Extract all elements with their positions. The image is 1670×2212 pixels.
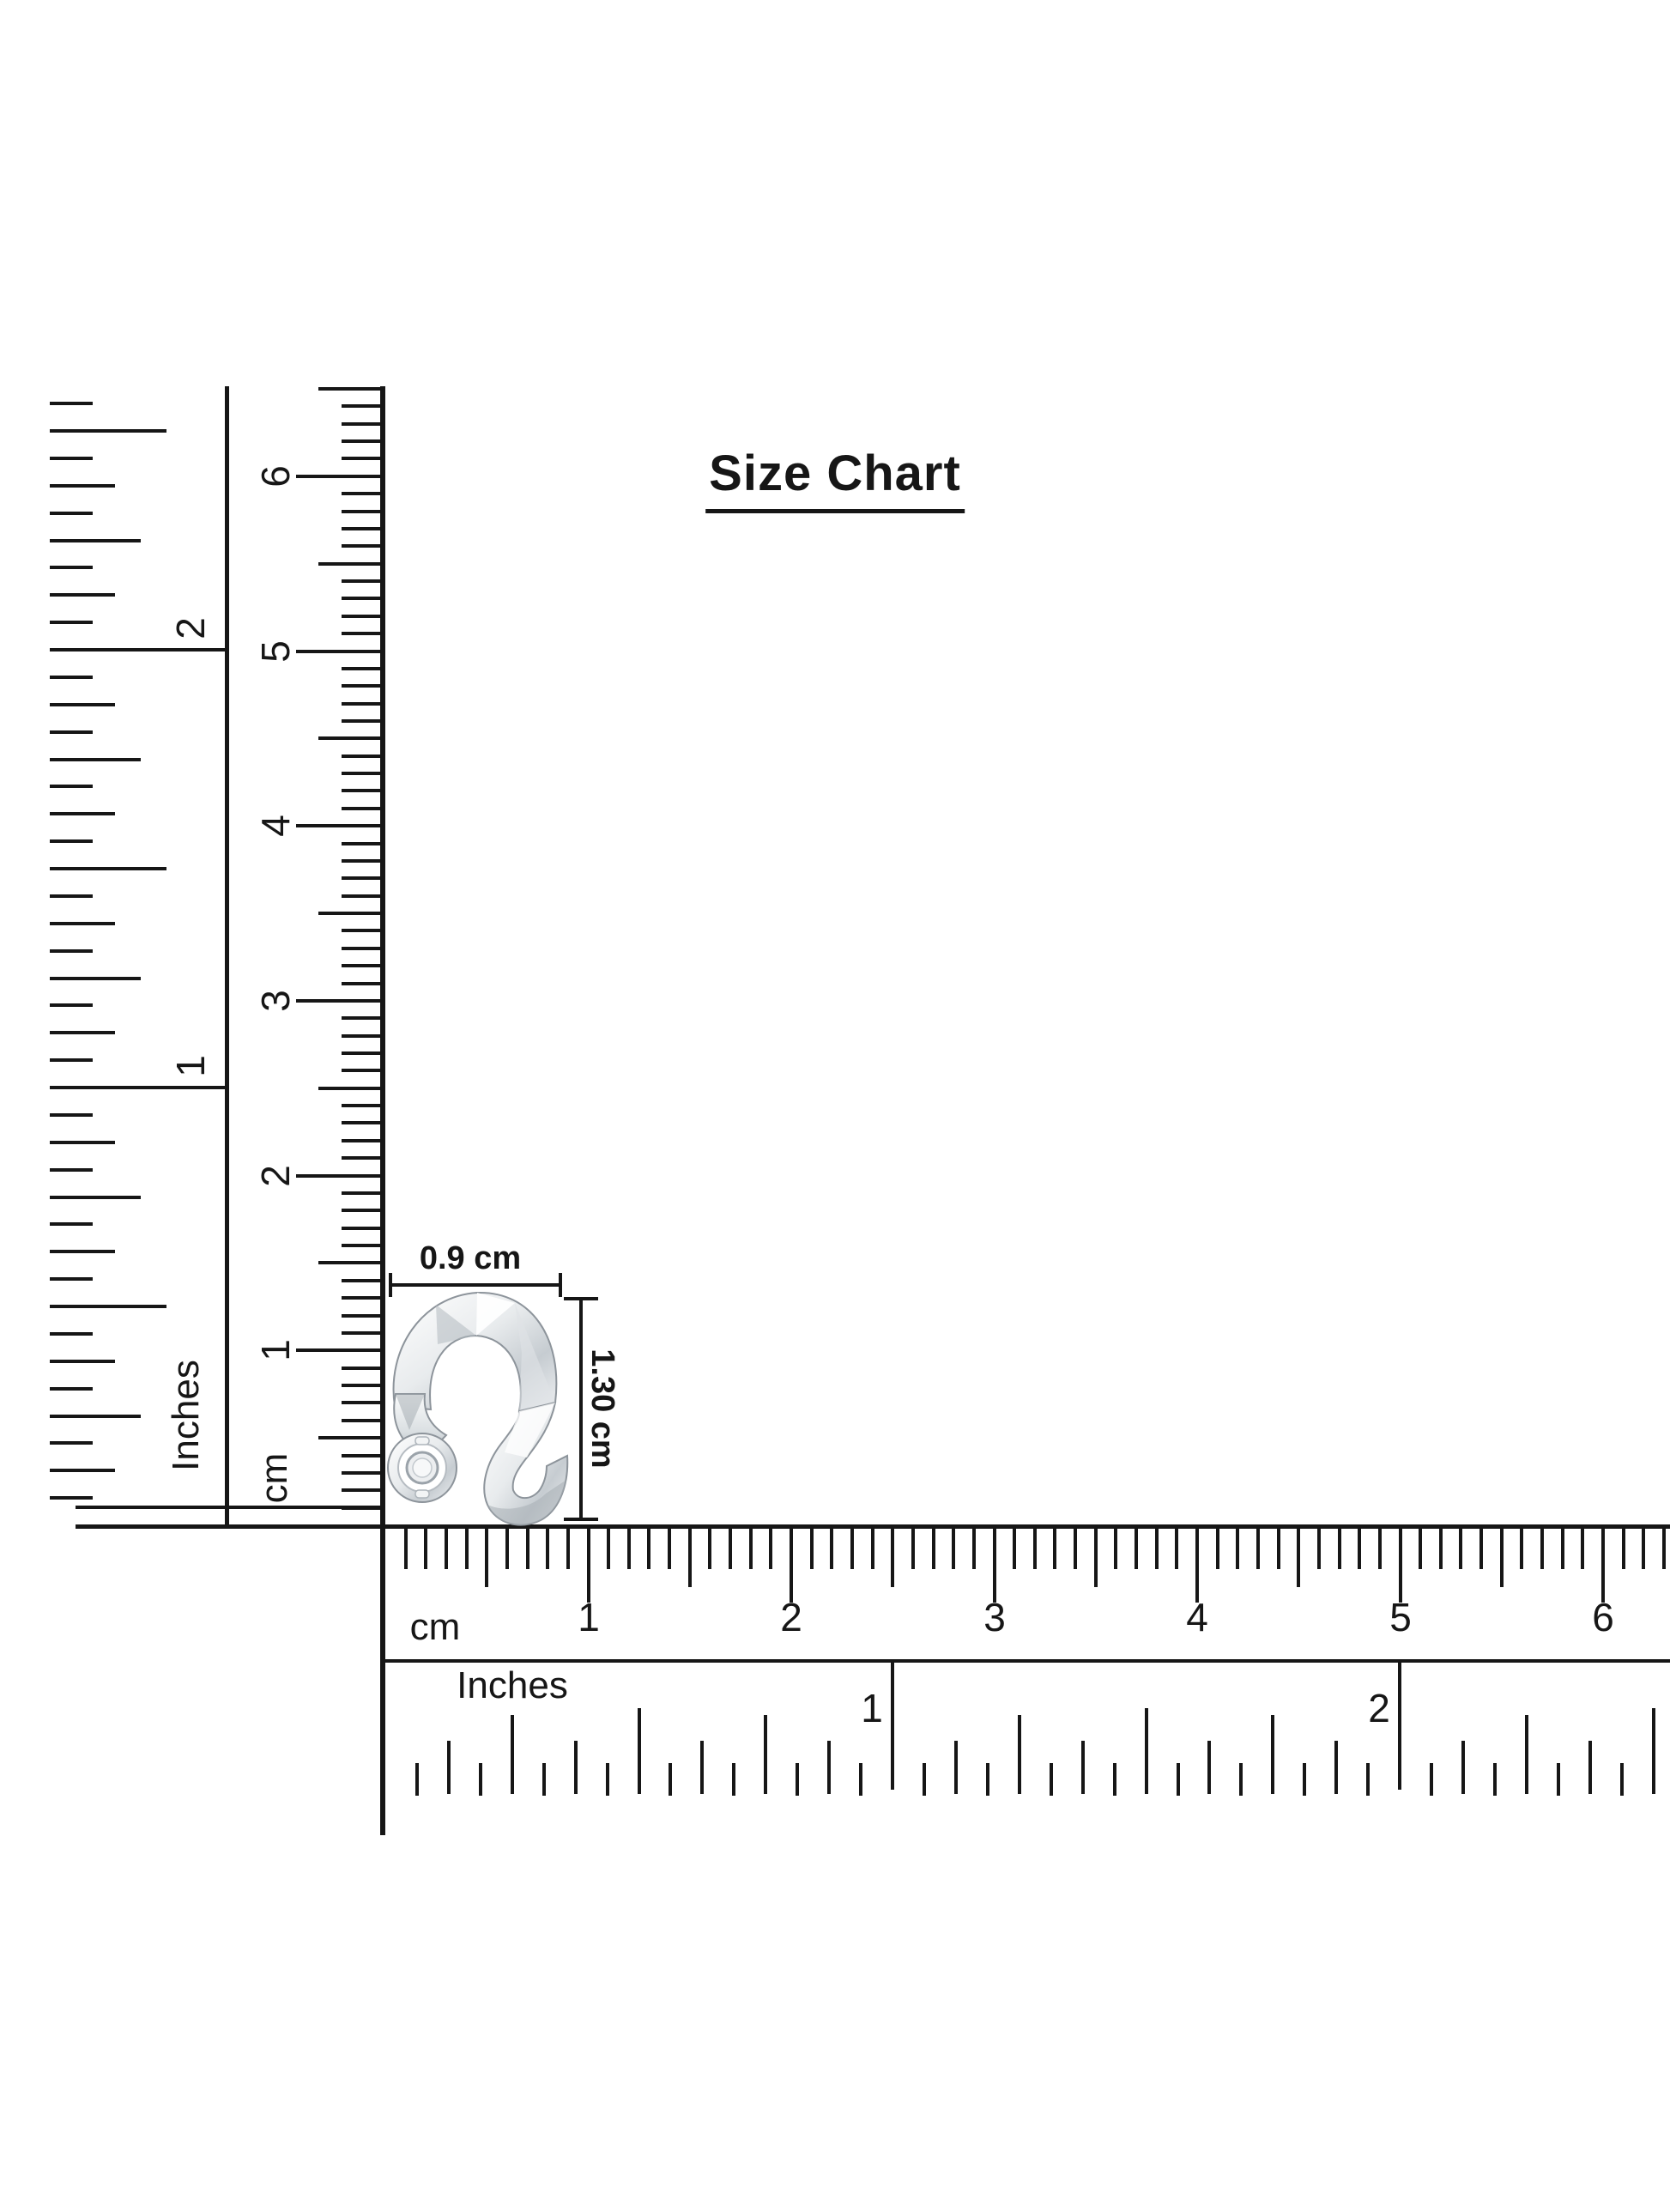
cm-tick	[1642, 1529, 1645, 1569]
vertical-inches-unit-label: Inches	[167, 1360, 205, 1471]
cm-tick	[445, 1529, 448, 1569]
height-dimension-line	[579, 1297, 583, 1521]
inch-tick	[50, 977, 141, 980]
inch-tick	[1334, 1741, 1338, 1794]
inch-tick	[1493, 1763, 1497, 1796]
cm-tick	[1601, 1529, 1605, 1603]
inch-tick	[50, 949, 93, 953]
inch-tick	[1525, 1715, 1528, 1794]
cm-tick	[1622, 1529, 1625, 1569]
inch-tick	[1050, 1763, 1053, 1796]
cm-tick	[342, 597, 384, 600]
cm-ruler-number: 1	[578, 1597, 600, 1637]
cm-tick	[708, 1529, 711, 1569]
cm-tick	[342, 947, 384, 950]
inch-tick	[827, 1741, 831, 1794]
cm-ruler-number: 5	[256, 640, 295, 663]
cm-tick	[1561, 1529, 1564, 1569]
cm-tick	[342, 615, 384, 618]
cm-tick	[342, 1244, 384, 1247]
cm-tick	[1540, 1529, 1544, 1569]
inch-tick	[50, 1031, 115, 1034]
cm-tick	[342, 527, 384, 530]
cm-tick	[1175, 1529, 1178, 1569]
cm-tick	[1419, 1529, 1422, 1569]
inch-tick	[50, 566, 93, 569]
cm-tick	[318, 1087, 384, 1090]
cm-tick	[342, 1401, 384, 1404]
cm-tick	[296, 1174, 384, 1178]
inch-ruler-number: 2	[1368, 1688, 1390, 1728]
inch-tick	[50, 1332, 93, 1336]
cm-tick	[318, 1436, 384, 1439]
cm-tick	[1338, 1529, 1341, 1569]
cm-tick	[668, 1529, 671, 1569]
page-title: Size Chart	[705, 445, 965, 513]
cm-tick	[1439, 1529, 1443, 1569]
inch-tick	[542, 1763, 546, 1796]
cm-tick	[1399, 1529, 1402, 1603]
inch-tick	[50, 1277, 93, 1281]
cm-tick	[342, 1034, 384, 1038]
inch-tick	[1366, 1763, 1370, 1796]
inch-tick	[50, 1141, 115, 1144]
cm-tick	[342, 422, 384, 426]
cm-tick	[972, 1529, 976, 1569]
cm-tick	[647, 1529, 650, 1569]
cm-ruler-number: 3	[983, 1597, 1006, 1637]
inch-tick	[50, 703, 115, 706]
cm-tick	[1033, 1529, 1037, 1569]
bezel-stone-center	[413, 1458, 432, 1477]
inch-tick	[1239, 1763, 1243, 1796]
inch-tick	[50, 1496, 93, 1500]
cm-ruler-number: 6	[1592, 1597, 1614, 1637]
cm-tick	[342, 1016, 384, 1020]
cm-tick	[342, 807, 384, 810]
inch-ruler-number: 1	[171, 1055, 210, 1077]
cm-tick	[790, 1529, 793, 1603]
inch-tick	[638, 1708, 641, 1794]
cm-tick	[342, 1209, 384, 1212]
inch-tick	[1652, 1708, 1655, 1794]
cm-tick	[342, 755, 384, 758]
inch-tick	[50, 1469, 115, 1472]
inch-tick	[50, 1250, 115, 1253]
cm-tick	[932, 1529, 935, 1569]
cm-ruler-number: 3	[256, 990, 295, 1012]
cm-tick	[1114, 1529, 1117, 1569]
cm-tick	[342, 876, 384, 880]
cm-ruler-number: 1	[256, 1339, 295, 1361]
cm-tick	[342, 1454, 384, 1457]
width-dimension-label: 0.9 cm	[420, 1242, 521, 1275]
inch-tick	[479, 1763, 482, 1796]
inch-tick	[50, 758, 141, 761]
cm-ruler-number: 6	[256, 465, 295, 488]
inch-tick	[50, 894, 93, 898]
cm-tick	[342, 1121, 384, 1124]
inch-tick	[447, 1741, 451, 1794]
cm-tick	[342, 1314, 384, 1318]
cm-tick	[342, 684, 384, 688]
cm-tick	[342, 1069, 384, 1072]
cm-tick	[318, 1261, 384, 1264]
inch-tick	[50, 1305, 166, 1308]
inch-tick	[700, 1741, 704, 1794]
inch-tick	[1081, 1741, 1085, 1794]
cm-ruler-number: 4	[1186, 1597, 1208, 1637]
horizontal-inches-unit-label: Inches	[457, 1667, 568, 1705]
inch-tick	[764, 1715, 767, 1794]
cm-tick	[342, 894, 384, 898]
inch-tick	[50, 1360, 115, 1363]
cm-tick	[318, 562, 384, 566]
inch-tick	[50, 812, 115, 815]
inch-tick	[50, 457, 93, 460]
cm-ruler-number: 4	[256, 815, 295, 837]
inch-tick	[50, 1387, 93, 1391]
cm-tick	[342, 404, 384, 408]
vertical-ruler-divider	[225, 386, 229, 1528]
cm-tick	[342, 439, 384, 443]
cm-tick	[1277, 1529, 1280, 1569]
inch-tick	[796, 1763, 799, 1796]
cm-tick	[342, 1506, 384, 1510]
cm-tick	[526, 1529, 529, 1569]
cm-tick	[587, 1529, 590, 1603]
inch-tick	[923, 1763, 926, 1796]
inch-tick	[50, 867, 166, 870]
cm-tick	[342, 929, 384, 932]
bezel-notch-top	[415, 1437, 429, 1445]
cm-tick	[566, 1529, 570, 1569]
cm-tick	[342, 1139, 384, 1142]
cm-tick	[342, 632, 384, 635]
cm-tick	[342, 1104, 384, 1107]
cm-ruler-number: 5	[1389, 1597, 1412, 1637]
inch-tick	[50, 484, 115, 488]
cm-tick	[296, 475, 384, 478]
inch-tick	[50, 1415, 141, 1418]
cm-tick	[607, 1529, 610, 1569]
inch-tick	[50, 1196, 141, 1199]
cm-tick	[342, 1471, 384, 1475]
cm-tick	[342, 1191, 384, 1195]
height-dimension-label: 1.30 cm	[586, 1348, 619, 1468]
inch-tick	[50, 429, 166, 433]
inch-tick	[1018, 1715, 1021, 1794]
cm-tick	[342, 1156, 384, 1160]
cm-tick	[342, 1384, 384, 1387]
inch-tick	[50, 402, 93, 405]
cm-tick	[342, 982, 384, 985]
inch-tick	[50, 1003, 93, 1007]
cm-tick	[296, 650, 384, 653]
cm-tick	[342, 544, 384, 548]
cm-tick	[485, 1529, 488, 1587]
cm-tick	[1500, 1529, 1504, 1587]
cm-tick	[850, 1529, 854, 1569]
cm-tick	[1013, 1529, 1016, 1569]
cm-tick	[342, 719, 384, 723]
cm-ruler-edge	[380, 386, 385, 1835]
cm-tick	[911, 1529, 915, 1569]
cm-tick	[342, 667, 384, 670]
horizontal-cm-unit-label: cm	[410, 1609, 461, 1646]
inch-tick	[606, 1763, 609, 1796]
inch-tick	[1557, 1763, 1560, 1796]
cm-tick	[404, 1529, 408, 1569]
cm-tick	[1053, 1529, 1056, 1569]
cm-tick	[1378, 1529, 1382, 1569]
cm-tick	[342, 579, 384, 583]
inch-tick	[50, 785, 93, 788]
cm-tick	[1195, 1529, 1199, 1603]
inch-tick	[511, 1715, 514, 1794]
cm-tick	[342, 842, 384, 845]
inch-tick	[954, 1741, 958, 1794]
inch-ruler-number: 2	[171, 617, 210, 639]
cm-tick	[1662, 1529, 1666, 1569]
inches-ruler-top-edge	[384, 1659, 1670, 1663]
inch-tick	[50, 839, 93, 843]
inch-tick	[669, 1763, 672, 1796]
cm-tick	[810, 1529, 814, 1569]
inch-tick	[986, 1763, 989, 1796]
cm-tick	[342, 772, 384, 775]
inch-tick	[50, 1441, 93, 1445]
inch-tick	[1207, 1741, 1211, 1794]
bezel-notch-bottom	[415, 1490, 429, 1498]
inch-tick	[891, 1663, 894, 1790]
cm-tick	[296, 999, 384, 1003]
cm-tick	[546, 1529, 549, 1569]
inch-tick	[50, 593, 115, 597]
cm-tick	[871, 1529, 874, 1569]
inch-tick	[859, 1763, 862, 1796]
cm-ruler-number: 2	[780, 1597, 802, 1637]
inch-tick	[1271, 1715, 1274, 1794]
cm-tick	[342, 1367, 384, 1370]
cm-tick	[769, 1529, 772, 1569]
cm-tick	[1074, 1529, 1077, 1569]
inch-tick	[50, 512, 93, 515]
cm-tick	[424, 1529, 427, 1569]
cm-tick	[318, 736, 384, 740]
inch-tick	[1145, 1708, 1148, 1794]
cm-tick	[1135, 1529, 1138, 1569]
cm-tick	[891, 1529, 894, 1587]
vertical-cm-unit-label: cm	[256, 1453, 293, 1504]
cm-tick	[296, 1348, 384, 1352]
inch-tick	[50, 648, 225, 651]
inch-tick	[50, 1168, 93, 1172]
inch-tick	[50, 539, 141, 542]
cm-tick	[1094, 1529, 1098, 1587]
cm-tick	[729, 1529, 732, 1569]
cm-tick	[749, 1529, 753, 1569]
inch-tick	[732, 1763, 735, 1796]
cm-tick	[1256, 1529, 1260, 1569]
cm-tick	[1520, 1529, 1523, 1569]
inch-tick	[50, 1222, 93, 1226]
cm-tick	[342, 510, 384, 513]
inch-tick	[1461, 1741, 1465, 1794]
inch-tick	[50, 621, 93, 624]
cm-tick	[1236, 1529, 1239, 1569]
cm-tick	[342, 1488, 384, 1492]
cm-tick	[342, 859, 384, 863]
cm-tick	[342, 1331, 384, 1335]
inch-tick	[50, 922, 115, 925]
inch-tick	[1430, 1763, 1433, 1796]
cm-tick	[342, 1227, 384, 1230]
inch-tick	[1303, 1763, 1306, 1796]
inch-tick	[1620, 1763, 1624, 1796]
cm-tick	[465, 1529, 469, 1569]
cm-tick	[1459, 1529, 1462, 1569]
cm-tick	[1317, 1529, 1321, 1569]
cm-tick	[318, 912, 384, 915]
cm-tick	[1155, 1529, 1159, 1569]
inch-tick	[50, 1058, 93, 1062]
cm-tick	[342, 964, 384, 967]
inch-tick	[1177, 1763, 1180, 1796]
cm-tick	[1358, 1529, 1361, 1569]
cm-tick	[1581, 1529, 1584, 1569]
cm-tick	[342, 1279, 384, 1282]
inch-tick	[1113, 1763, 1116, 1796]
cm-tick	[627, 1529, 631, 1569]
cm-ruler-number: 2	[256, 1165, 295, 1187]
cm-tick	[342, 457, 384, 460]
cm-tick	[830, 1529, 833, 1569]
cm-tick	[952, 1529, 955, 1569]
inch-tick	[50, 676, 93, 679]
size-chart-canvas: Size Chart 12 123456 123456 12 Inches cm…	[0, 0, 1670, 2212]
cm-tick	[342, 1296, 384, 1300]
cm-tick	[342, 1419, 384, 1422]
cm-tick	[1216, 1529, 1219, 1569]
cm-tick	[688, 1529, 692, 1587]
ear-cuff-product-image	[384, 1284, 572, 1526]
cm-tick	[505, 1529, 509, 1569]
inch-tick	[50, 1086, 225, 1089]
cm-tick	[342, 789, 384, 792]
cm-tick	[993, 1529, 996, 1603]
cm-tick	[296, 824, 384, 827]
cm-tick	[1297, 1529, 1300, 1587]
inch-tick	[1398, 1663, 1401, 1790]
cm-tick	[318, 387, 384, 391]
inch-ruler-number: 1	[861, 1688, 883, 1728]
cm-tick	[1479, 1529, 1483, 1569]
cm-tick	[342, 702, 384, 706]
inch-tick	[1588, 1741, 1592, 1794]
inch-tick	[50, 730, 93, 734]
cm-tick	[342, 1051, 384, 1055]
inch-tick	[574, 1741, 578, 1794]
inch-tick	[50, 1113, 93, 1117]
inch-tick	[415, 1763, 419, 1796]
vertical-ruler-baseline	[76, 1506, 383, 1509]
cm-tick	[342, 492, 384, 495]
